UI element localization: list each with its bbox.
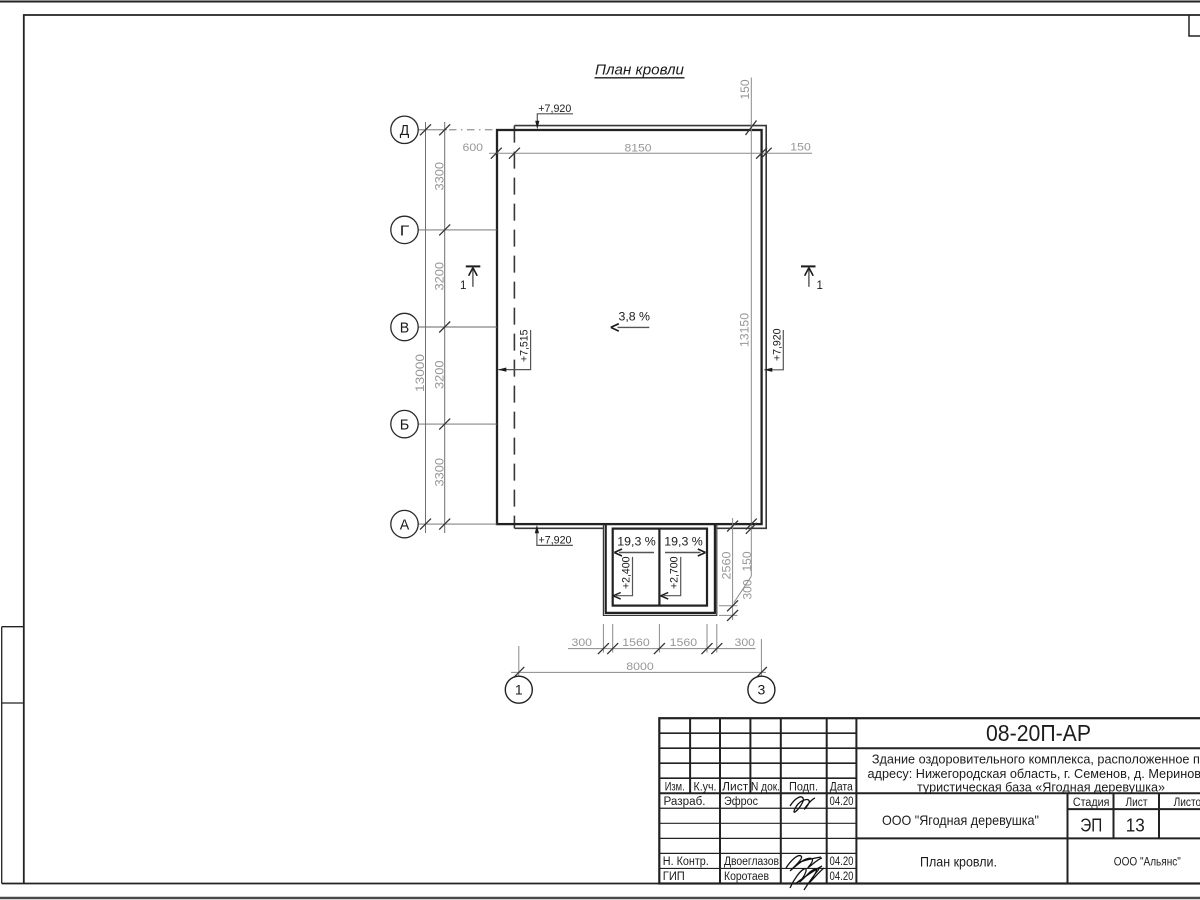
svg-text:+7,920: +7,920 bbox=[772, 329, 784, 362]
svg-text:1: 1 bbox=[817, 280, 823, 292]
svg-text:Дата: Дата bbox=[830, 781, 854, 793]
svg-text:Коротаев: Коротаев bbox=[724, 871, 769, 883]
svg-text:8000: 8000 bbox=[626, 661, 654, 673]
svg-text:13: 13 bbox=[1126, 814, 1145, 835]
svg-text:Д: Д bbox=[400, 122, 410, 139]
svg-text:Лист: Лист bbox=[1126, 797, 1149, 809]
svg-text:08-20П-АР: 08-20П-АР bbox=[986, 720, 1091, 746]
svg-text:В: В bbox=[400, 319, 410, 336]
svg-text:3,8 %: 3,8 % bbox=[619, 312, 651, 324]
svg-text:300: 300 bbox=[735, 637, 756, 649]
svg-text:3300: 3300 bbox=[434, 162, 446, 191]
svg-text:А: А bbox=[400, 517, 410, 534]
svg-text:Г: Г bbox=[400, 222, 410, 239]
svg-text:+7,920: +7,920 bbox=[539, 534, 572, 546]
svg-text:Изм.: Изм. bbox=[665, 781, 685, 793]
svg-text:ООО "Ягодная деревушка": ООО "Ягодная деревушка" bbox=[882, 812, 1039, 828]
svg-text:Подп.: Подп. bbox=[789, 781, 818, 793]
svg-text:150: 150 bbox=[742, 552, 754, 572]
svg-text:1560: 1560 bbox=[622, 637, 650, 649]
svg-text:ООО "Альянс": ООО "Альянс" bbox=[1114, 856, 1181, 868]
svg-text:Двоеглазов: Двоеглазов bbox=[724, 856, 779, 868]
svg-text:1560: 1560 bbox=[670, 637, 698, 649]
svg-text:К.уч.: К.уч. bbox=[694, 781, 717, 793]
svg-text:+2,700: +2,700 bbox=[669, 557, 681, 590]
svg-text:1: 1 bbox=[515, 682, 523, 698]
svg-text:8150: 8150 bbox=[625, 143, 652, 155]
svg-text:13150: 13150 bbox=[740, 313, 752, 347]
svg-text:3300: 3300 bbox=[434, 458, 446, 487]
svg-text:150: 150 bbox=[740, 80, 752, 100]
svg-text:300: 300 bbox=[743, 580, 755, 600]
svg-text:04.20: 04.20 bbox=[830, 796, 854, 808]
svg-text:600: 600 bbox=[463, 142, 484, 154]
svg-text:План кровли: План кровли bbox=[595, 62, 685, 79]
svg-text:Разраб.: Разраб. bbox=[664, 796, 706, 808]
svg-text:Лист: Лист bbox=[722, 781, 749, 793]
svg-text:Эфрос: Эфрос bbox=[724, 796, 758, 808]
svg-text:3200: 3200 bbox=[434, 361, 446, 390]
svg-text:ЭП: ЭП bbox=[1080, 814, 1102, 835]
svg-text:3200: 3200 bbox=[434, 262, 446, 291]
svg-text:3: 3 bbox=[758, 682, 766, 698]
svg-text:150: 150 bbox=[790, 142, 811, 154]
svg-text:+7,920: +7,920 bbox=[538, 103, 571, 115]
svg-text:2560: 2560 bbox=[721, 552, 733, 580]
svg-text:Н. Контр.: Н. Контр. bbox=[663, 856, 709, 868]
svg-text:План кровли.: План кровли. bbox=[920, 854, 997, 870]
svg-text:19,3 %: 19,3 % bbox=[664, 536, 703, 548]
svg-text:+7,515: +7,515 bbox=[519, 330, 531, 363]
svg-text:19,3 %: 19,3 % bbox=[617, 536, 656, 548]
svg-text:Здание оздоровительного компле: Здание оздоровительного комплекса, распо… bbox=[872, 751, 1200, 766]
svg-text:ГИП: ГИП bbox=[663, 871, 685, 883]
svg-text:1: 1 bbox=[460, 280, 466, 292]
svg-text:13000: 13000 bbox=[415, 354, 427, 392]
svg-text:туристическая база «Ягодная де: туристическая база «Ягодная деревушка» bbox=[917, 779, 1165, 794]
svg-text:N док.: N док. bbox=[751, 781, 780, 793]
svg-text:+2,400: +2,400 bbox=[621, 557, 633, 590]
svg-text:Б: Б bbox=[400, 417, 410, 434]
svg-text:300: 300 bbox=[572, 637, 593, 649]
svg-text:Листов: Листов bbox=[1174, 797, 1200, 809]
svg-text:04.20: 04.20 bbox=[830, 856, 854, 868]
svg-text:Стадия: Стадия bbox=[1073, 797, 1110, 809]
svg-text:04.20: 04.20 bbox=[830, 871, 854, 883]
